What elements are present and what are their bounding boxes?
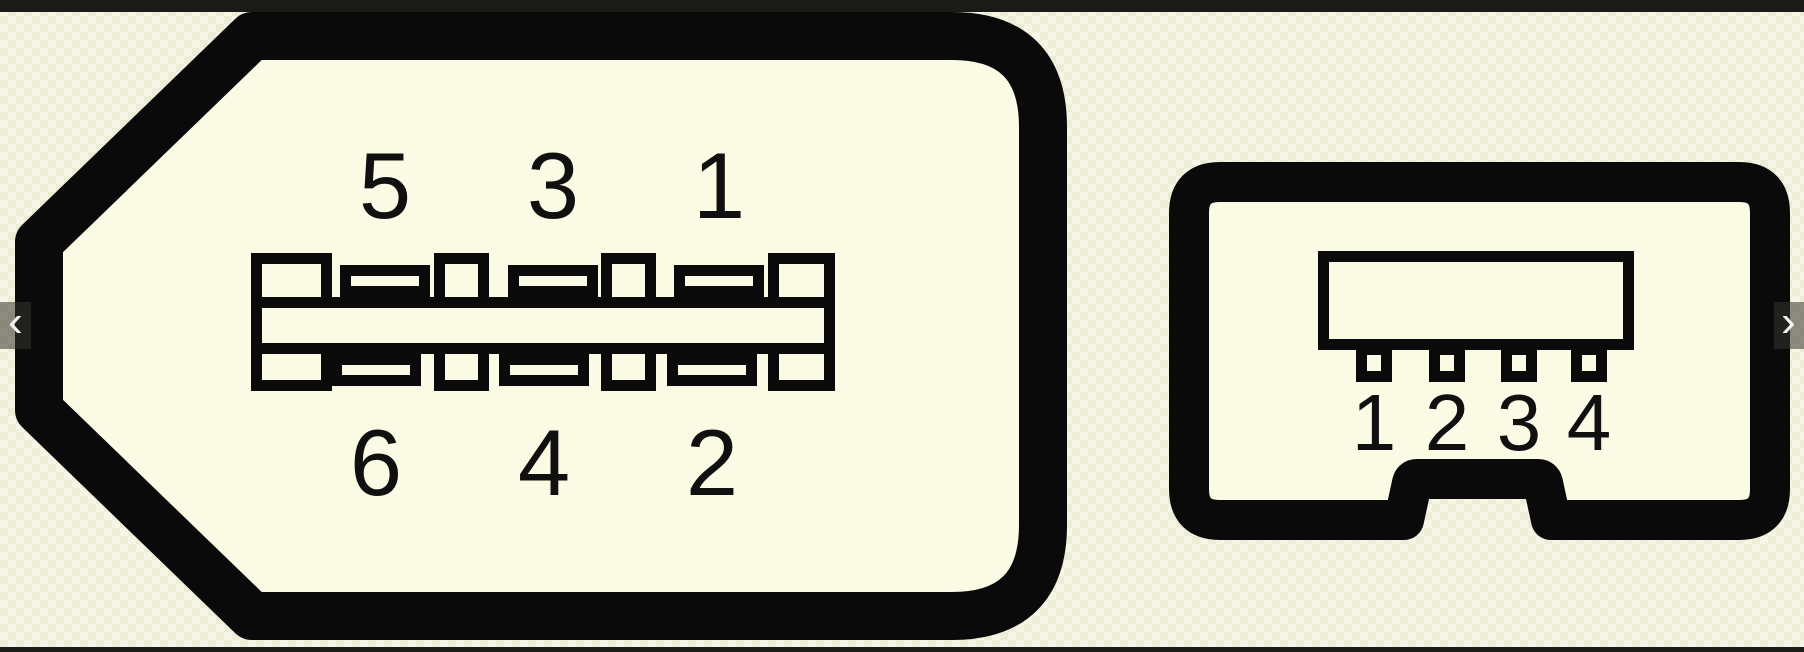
pin-label-1: 1 [1352, 378, 1397, 467]
pin-label-1: 1 [693, 133, 745, 238]
pin-contact-6 [337, 360, 416, 381]
pin-contact-3 [1507, 350, 1532, 377]
pin-label-4: 4 [518, 410, 570, 515]
connector-pinout-diagram: 5 3 1 6 4 2 1 2 3 4 [0, 0, 1804, 652]
previous-image-button[interactable]: ‹ [0, 302, 31, 349]
connector-4pin-body [1189, 182, 1770, 520]
pin-contact-2 [1435, 350, 1460, 377]
pin-contact-1 [680, 271, 759, 292]
chevron-right-icon: › [1781, 300, 1796, 344]
pin-label-6: 6 [350, 410, 402, 515]
pin-contact-4 [1577, 350, 1602, 377]
pin-contact-5 [346, 271, 425, 292]
pin-label-4: 4 [1567, 378, 1612, 467]
pin-label-2: 2 [686, 410, 738, 515]
pin-contact-1 [1362, 350, 1387, 377]
chevron-left-icon: ‹ [8, 300, 23, 344]
connector-4pin: 1 2 3 4 [1189, 182, 1770, 520]
pin-contact-3 [514, 271, 593, 292]
image-viewer: 5 3 1 6 4 2 1 2 3 4 ‹ › [0, 0, 1804, 652]
next-image-button[interactable]: › [1774, 302, 1804, 349]
connector-6pin: 5 3 1 6 4 2 [39, 36, 1043, 616]
connector-6pin-body [39, 36, 1043, 616]
pin-label-2: 2 [1425, 378, 1470, 467]
pin-label-5: 5 [359, 133, 411, 238]
pin-contact-4 [505, 360, 584, 381]
socket-opening [1324, 257, 1629, 345]
pin-label-3: 3 [527, 133, 579, 238]
pin-contact-2 [673, 360, 752, 381]
pin-label-3: 3 [1497, 378, 1542, 467]
